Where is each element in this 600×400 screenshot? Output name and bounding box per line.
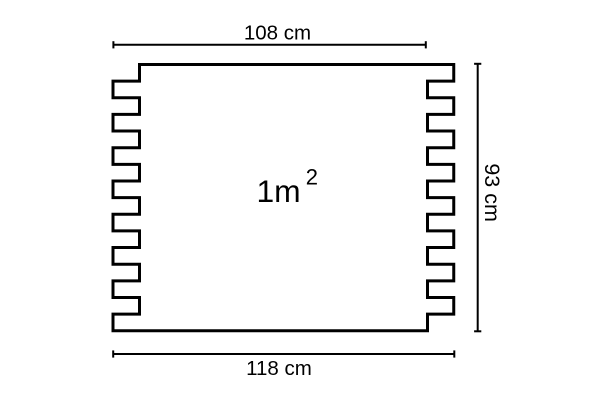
svg-text:1m: 1m — [257, 173, 301, 209]
svg-text:2: 2 — [306, 164, 318, 189]
svg-text:108 cm: 108 cm — [244, 21, 311, 44]
svg-text:93 cm: 93 cm — [480, 163, 504, 222]
svg-text:118 cm: 118 cm — [246, 357, 312, 380]
